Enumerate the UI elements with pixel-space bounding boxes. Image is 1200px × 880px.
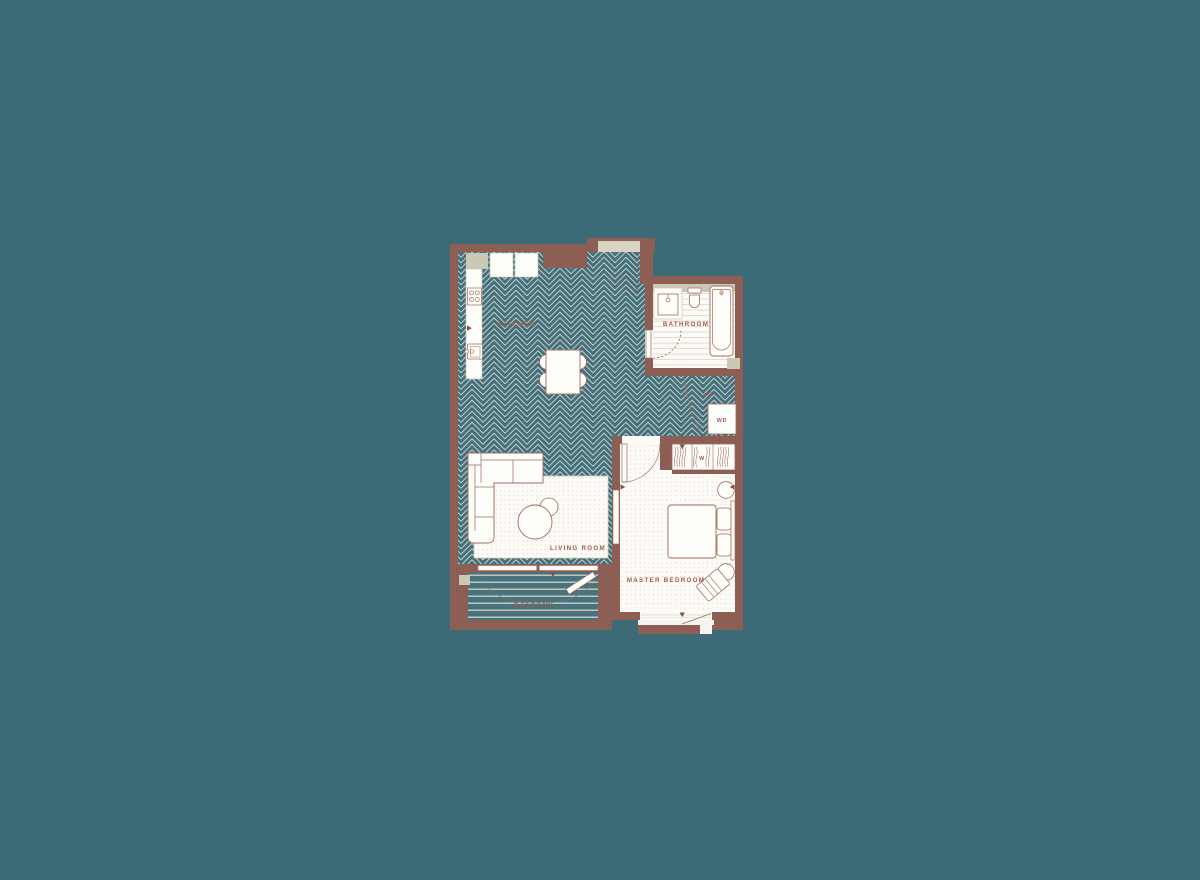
service-duct	[727, 358, 740, 369]
balcony-label: BALCONY	[514, 602, 554, 609]
wall-segment	[660, 436, 743, 444]
bathroom-label: BATHROOM	[663, 321, 709, 328]
floor-plan: KITCHEN BATHROOM LIVING ROOM MASTER BEDR…	[450, 238, 748, 638]
wall-segment	[712, 612, 743, 630]
headboard	[731, 501, 735, 560]
toilet-icon	[688, 288, 701, 308]
wall-segment	[640, 238, 655, 252]
vanity-sink-icon	[654, 288, 682, 319]
door-leaf	[646, 330, 651, 358]
kitchen-appliance	[515, 253, 538, 277]
entry-hall-floor	[587, 252, 645, 368]
wall-segment	[543, 244, 587, 268]
door-leaf	[622, 444, 627, 482]
wall-segment	[458, 620, 598, 630]
entry-lintel	[598, 238, 640, 241]
wall-segment	[660, 436, 672, 470]
radiator	[613, 490, 619, 544]
kitchen-label: KITCHEN	[499, 321, 536, 328]
cooktop-icon	[468, 288, 482, 305]
dining-table	[540, 350, 587, 394]
wall-segment	[735, 276, 743, 630]
bedroom-window	[638, 612, 714, 634]
wall-segment	[620, 612, 640, 620]
coffee-table	[518, 505, 552, 539]
floor-plan-drawing: KITCHEN BATHROOM LIVING ROOM MASTER BEDR…	[450, 238, 748, 638]
utility-cupboard-label: UC	[703, 392, 712, 398]
mattress	[668, 505, 716, 558]
wall-segment	[450, 244, 458, 630]
kitchen-counter	[466, 269, 482, 379]
wall-segment	[598, 564, 612, 630]
pillow	[717, 508, 731, 530]
wall-segment	[640, 252, 653, 284]
wardrobe-label: W	[699, 456, 705, 462]
wall-segment	[653, 276, 743, 284]
wall-segment	[645, 284, 653, 330]
bathtub-icon	[710, 286, 733, 356]
master-bedroom-label: MASTER BEDROOM	[627, 577, 705, 584]
side-table	[718, 482, 735, 499]
washer-dryer-label: WD	[717, 418, 727, 424]
door-mullion	[537, 564, 540, 572]
balcony-box	[459, 575, 470, 585]
wall-segment	[587, 238, 598, 252]
kitchen-sink-icon	[465, 344, 483, 359]
kitchen-corner-counter	[466, 253, 488, 269]
wall-segment	[645, 368, 743, 376]
pillow	[717, 534, 731, 556]
kitchen-appliance	[490, 253, 513, 277]
entry-threshold	[598, 241, 640, 252]
living-room-label: LIVING ROOM	[550, 545, 606, 552]
balcony-deck	[468, 572, 598, 620]
